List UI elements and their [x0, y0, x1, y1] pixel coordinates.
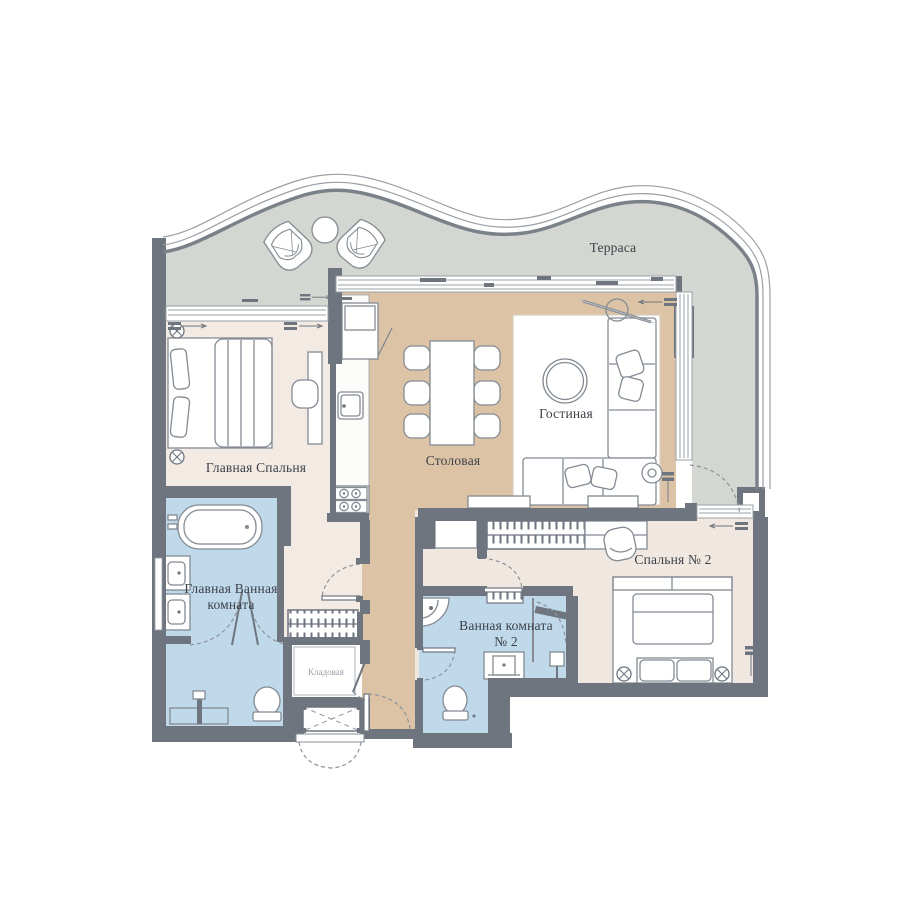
bedroom2-bed [613, 577, 732, 683]
sofa-console [468, 496, 530, 508]
floor-socket [715, 667, 729, 681]
bedroom-armchair [292, 380, 318, 408]
label-storage: Кладовая [308, 667, 344, 677]
label-master-bath-line1: Главная Ванная [184, 581, 277, 596]
label-bedroom2: Спальня № 2 [634, 552, 711, 567]
side-table [642, 463, 662, 483]
label-bathroom2-line2: № 2 [494, 634, 518, 649]
label-master-bath-line2: комната [207, 597, 254, 612]
master-bed [168, 338, 272, 448]
hall-closet [435, 519, 477, 548]
dining-window [336, 276, 676, 292]
floor-socket [170, 324, 184, 338]
kitchen-sink [338, 392, 363, 419]
vanity2 [484, 652, 524, 679]
floor-socket [170, 450, 184, 464]
floor-plan-page: Терраса Главная Спальня Столовая Гостина… [0, 0, 906, 906]
label-master-bedroom: Главная Спальня [206, 460, 306, 475]
shaft [301, 705, 362, 733]
living-window [676, 292, 692, 460]
terrace-mark [242, 299, 258, 302]
dining-table-set [404, 341, 500, 445]
wall-niche [155, 558, 162, 630]
floor-plan-drawing: Терраса Главная Спальня Столовая Гостина… [0, 0, 906, 906]
label-bathroom2-line1: Ванная комната [459, 618, 553, 633]
entrance-double-door[interactable] [296, 734, 364, 768]
label-terrace: Терраса [590, 240, 637, 255]
master-bedroom-window [166, 306, 328, 321]
master-wardrobe [288, 610, 358, 638]
bedroom2-wardrobe [487, 521, 585, 549]
bedroom2-window [697, 505, 753, 518]
terrace-table [312, 217, 338, 243]
stove [333, 486, 369, 514]
sofa-console2 [588, 496, 638, 508]
label-living: Гостиная [539, 406, 593, 421]
label-dining: Столовая [426, 453, 481, 468]
floor-socket [617, 667, 631, 681]
